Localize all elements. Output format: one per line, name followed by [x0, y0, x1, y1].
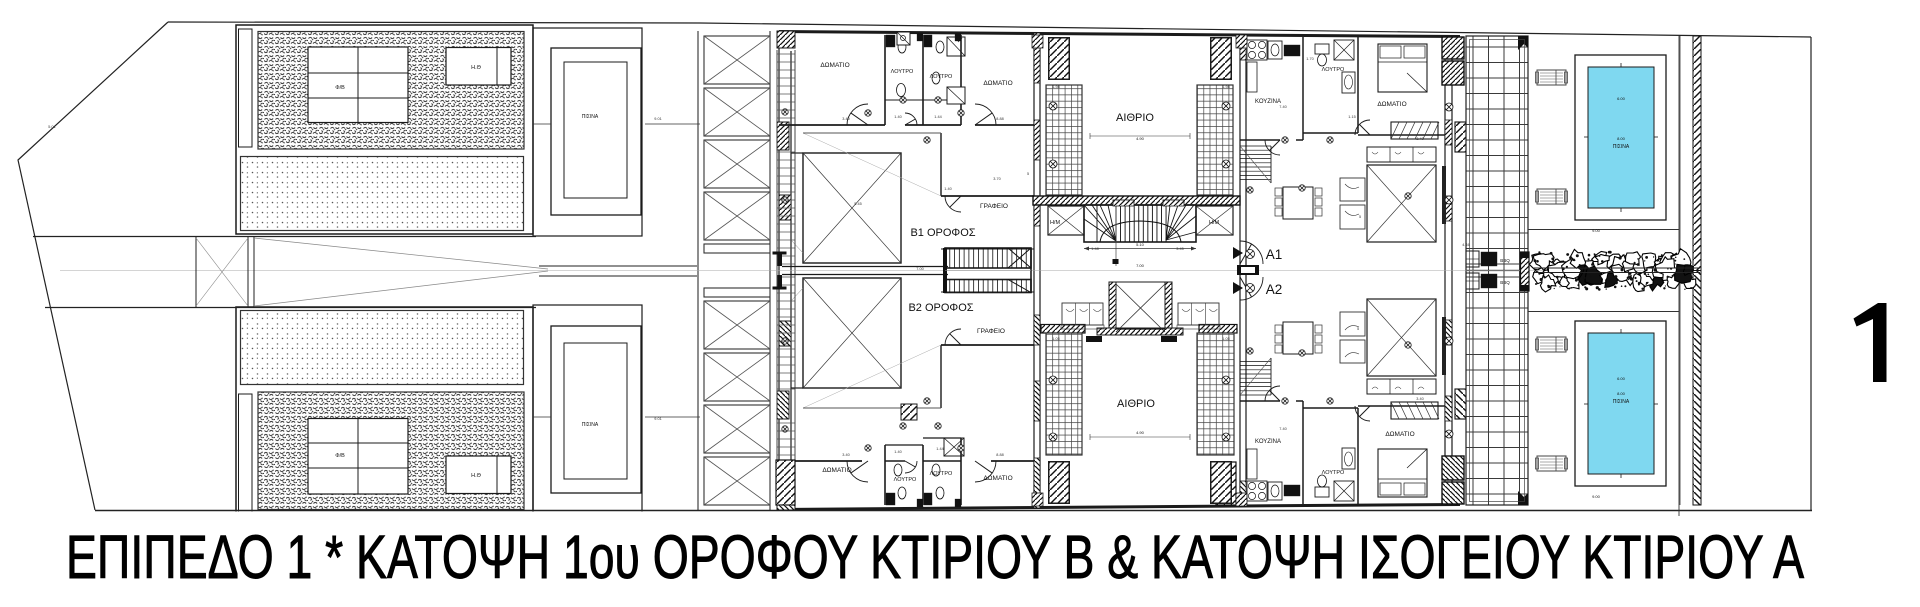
svg-text:1.44: 1.44	[934, 115, 941, 119]
svg-text:1.05: 1.05	[1222, 337, 1229, 341]
svg-text:5.10: 5.10	[1136, 242, 1145, 247]
svg-text:Φ/Β: Φ/Β	[335, 85, 345, 91]
svg-text:ΠΙΣΙΝΑ: ΠΙΣΙΝΑ	[582, 422, 599, 428]
svg-text:ΕΠΙΠΕΔΟ 1 * ΚΑΤΟΨΗ 1ου ΟΡΟΦΟΥ: ΕΠΙΠΕΔΟ 1 * ΚΑΤΟΨΗ 1ου ΟΡΟΦΟΥ ΚΤΙΡΙΟΥ Β …	[66, 523, 1804, 591]
svg-text:A2: A2	[1266, 282, 1283, 297]
svg-text:Η.Θ: Η.Θ	[471, 65, 482, 71]
svg-text:ΔΩΜΑΤΙΟ: ΔΩΜΑΤΙΟ	[1385, 431, 1414, 438]
svg-text:4.46: 4.46	[1462, 243, 1469, 247]
svg-text:1.48: 1.48	[1091, 247, 1098, 251]
svg-text:3.45: 3.45	[1176, 247, 1183, 251]
svg-text:ΑΙΘΡΙΟ: ΑΙΘΡΙΟ	[1116, 112, 1154, 124]
svg-text:ΛΟΥΤΡΟ: ΛΟΥΤΡΟ	[930, 74, 953, 80]
svg-text:3.40: 3.40	[1416, 137, 1423, 141]
svg-text:ΔΩΜΑΤΙΟ: ΔΩΜΑΤΙΟ	[983, 475, 1012, 482]
svg-text:8.00: 8.00	[1617, 136, 1626, 141]
svg-text:9.01: 9.01	[654, 117, 661, 121]
svg-text:ΛΟΥΤΡΟ: ΛΟΥΤΡΟ	[1322, 67, 1345, 73]
svg-text:ΑΙΘΡΙΟ: ΑΙΘΡΙΟ	[1117, 398, 1155, 410]
svg-text:5: 5	[1357, 327, 1359, 331]
svg-text:9.01: 9.01	[654, 417, 661, 421]
svg-text:8.88: 8.88	[996, 117, 1003, 121]
svg-text:Η/Μ: Η/Μ	[1050, 220, 1061, 226]
svg-text:Φ/Β: Φ/Β	[335, 453, 345, 459]
svg-text:ΠΙΣΙΝΑ: ΠΙΣΙΝΑ	[1613, 399, 1630, 405]
svg-text:ΠΙΣΙΝΑ: ΠΙΣΙΝΑ	[1613, 144, 1630, 150]
svg-text:ΛΟΥΤΡΟ: ΛΟΥΤΡΟ	[1322, 470, 1345, 476]
svg-text:ΔΩΜΑΤΙΟ: ΔΩΜΑΤΙΟ	[983, 80, 1012, 87]
svg-text:ΛΟΥΤΡΟ: ΛΟΥΤΡΟ	[930, 471, 953, 477]
svg-text:ΔΩΜΑΤΙΟ: ΔΩΜΑΤΙΟ	[822, 467, 851, 474]
svg-text:Η/Μ: Η/Μ	[1209, 220, 1220, 226]
svg-text:3.40: 3.40	[1416, 397, 1423, 401]
svg-text:B1 ΟΡΟΦΟΣ: B1 ΟΡΟΦΟΣ	[910, 227, 975, 239]
svg-text:5.45: 5.45	[854, 202, 861, 206]
svg-text:BBQ: BBQ	[1500, 258, 1510, 263]
svg-text:3.70: 3.70	[993, 177, 1000, 181]
svg-text:1.40: 1.40	[894, 115, 901, 119]
svg-text:7.40: 7.40	[1279, 427, 1286, 431]
svg-text:1.40: 1.40	[944, 187, 951, 191]
svg-text:9.00: 9.00	[1592, 228, 1601, 233]
svg-text:4.90: 4.90	[1136, 430, 1145, 435]
svg-text:ΔΩΜΑΤΙΟ: ΔΩΜΑΤΙΟ	[1377, 101, 1406, 108]
svg-text:1.15: 1.15	[1348, 115, 1355, 119]
svg-text:5.01: 5.01	[48, 124, 57, 129]
svg-text:8.00: 8.00	[1617, 391, 1626, 396]
svg-text:5: 5	[1359, 215, 1361, 219]
svg-text:9.00: 9.00	[1592, 494, 1601, 499]
svg-text:ΛΟΥΤΡΟ: ΛΟΥΤΡΟ	[894, 477, 917, 483]
svg-text:ΔΩΜΑΤΙΟ: ΔΩΜΑΤΙΟ	[820, 62, 849, 69]
svg-text:ΚΟΥΖΙΝΑ: ΚΟΥΖΙΝΑ	[1255, 99, 1281, 105]
svg-text:ΠΙΣΙΝΑ: ΠΙΣΙΝΑ	[582, 114, 599, 120]
svg-text:6.00: 6.00	[1617, 96, 1626, 101]
svg-text:A1: A1	[1266, 247, 1283, 262]
svg-text:1.70: 1.70	[1306, 57, 1313, 61]
svg-text:3.40: 3.40	[842, 117, 849, 121]
svg-text:ΚΟΥΖΙΝΑ: ΚΟΥΖΙΝΑ	[1255, 439, 1281, 445]
svg-text:8.88: 8.88	[996, 453, 1003, 457]
svg-text:ΓΡΑΦΕΙΟ: ΓΡΑΦΕΙΟ	[977, 328, 1005, 335]
svg-text:7.40: 7.40	[1279, 105, 1286, 109]
svg-text:5: 5	[1027, 172, 1029, 176]
svg-text:3.40: 3.40	[842, 453, 849, 457]
svg-text:Η.Θ: Η.Θ	[471, 473, 482, 479]
svg-text:ΓΡΑΦΕΙΟ: ΓΡΑΦΕΙΟ	[980, 203, 1008, 210]
svg-text:1.98: 1.98	[1222, 85, 1229, 89]
svg-text:ΛΟΥΤΡΟ: ΛΟΥΤΡΟ	[891, 69, 914, 75]
svg-text:1.44: 1.44	[936, 447, 943, 451]
svg-text:6.00: 6.00	[1617, 376, 1626, 381]
svg-text:7.00: 7.00	[1136, 263, 1145, 268]
svg-text:4.90: 4.90	[1136, 136, 1145, 141]
svg-text:B2 ΟΡΟΦΟΣ: B2 ΟΡΟΦΟΣ	[908, 302, 973, 314]
svg-text:7.00: 7.00	[916, 267, 923, 271]
svg-text:1.05: 1.05	[1052, 337, 1059, 341]
svg-text:BBQ: BBQ	[1500, 280, 1510, 285]
svg-text:1.98: 1.98	[1052, 85, 1059, 89]
svg-text:1.40: 1.40	[894, 450, 901, 454]
